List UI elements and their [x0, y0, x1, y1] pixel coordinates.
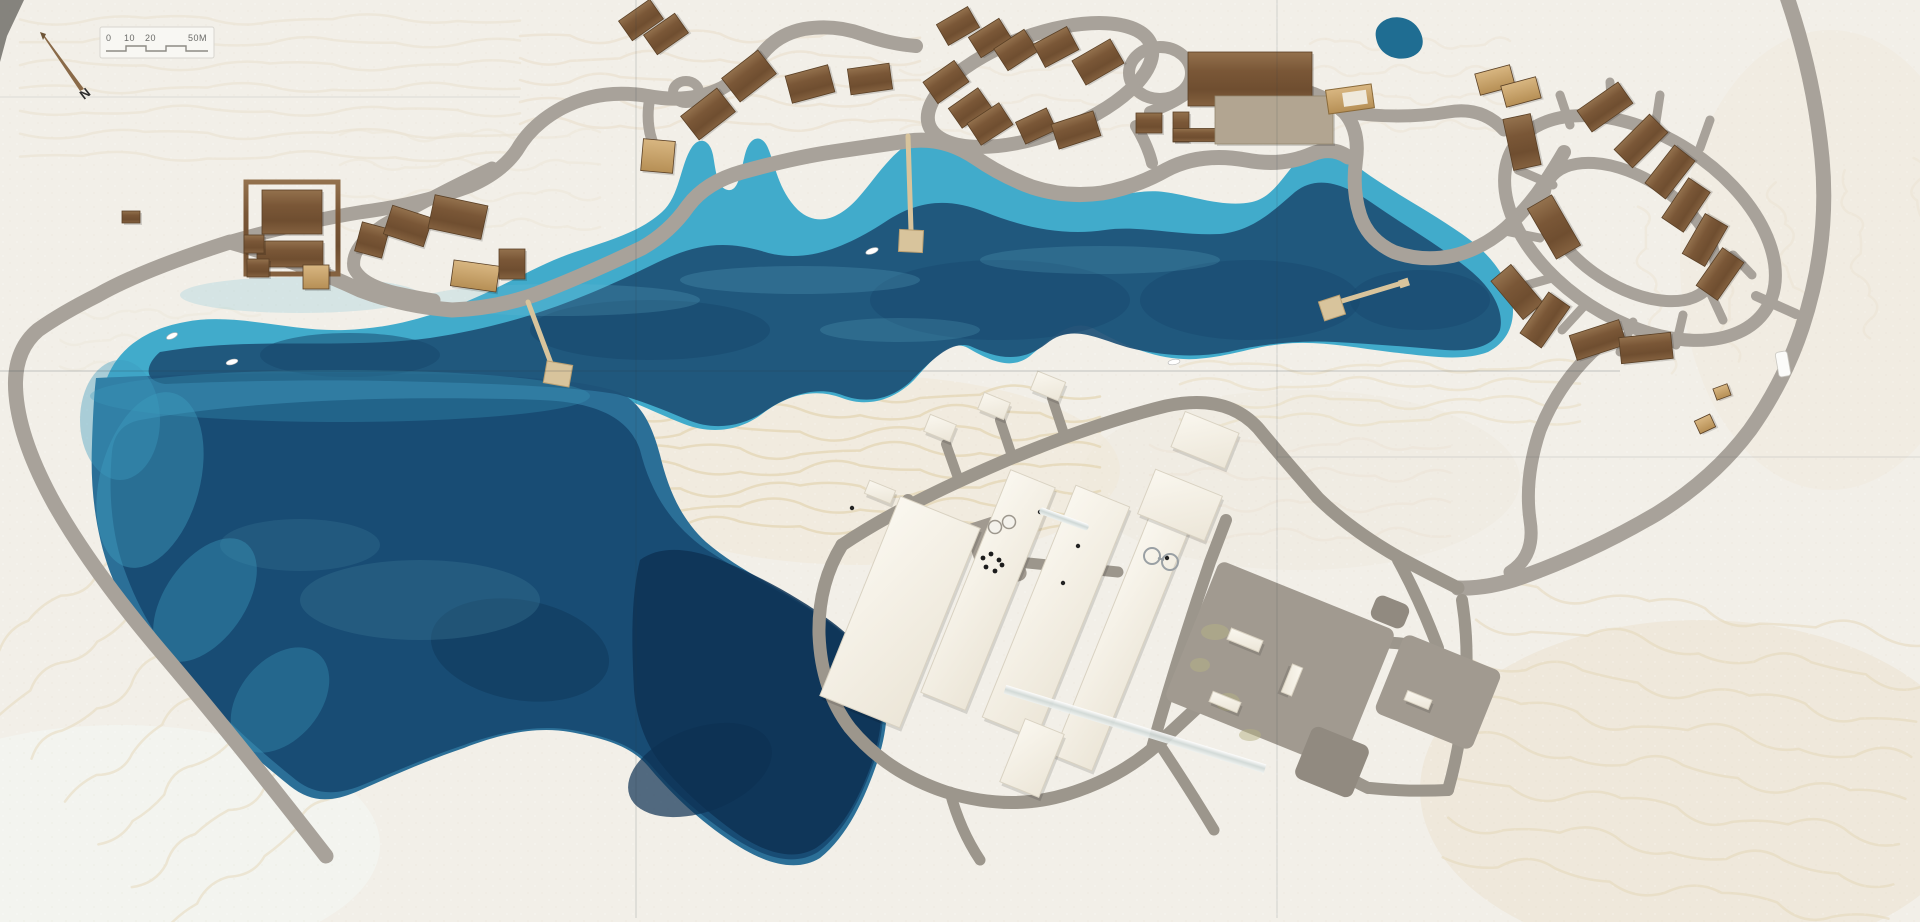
building-wood-block: [847, 63, 892, 95]
pin-dot: [1061, 581, 1065, 585]
building-wood-block: [247, 259, 269, 277]
tank-port-dot: [1000, 563, 1005, 568]
tank-port-dot: [993, 569, 998, 574]
pier-walkway: [908, 136, 911, 230]
moss-patch: [1201, 624, 1229, 640]
tank-port-dot: [997, 558, 1002, 563]
pier-platform: [543, 361, 572, 387]
scale-0: 0: [106, 33, 112, 43]
building-lightwood-block: [641, 139, 676, 174]
pin-dot: [850, 506, 854, 510]
model-scene: N 0 10 20 50M: [0, 0, 1920, 922]
scale-10: 10: [124, 33, 135, 43]
building-lightwood-block: [303, 265, 329, 289]
scale-20: 20: [145, 33, 156, 43]
building-wood-block: [1619, 332, 1673, 363]
moss-patch: [1239, 729, 1261, 741]
moss-patch: [1190, 658, 1210, 672]
building-wood-block: [244, 235, 264, 253]
building-wood-block: [499, 249, 525, 279]
scale-bar: 0 10 20 50M: [100, 27, 214, 58]
building-wood-block: [262, 190, 322, 234]
building-chipboard-slab: [1215, 96, 1333, 144]
tank-port-dot: [984, 565, 989, 570]
pier-platform: [898, 229, 923, 252]
water-detail: [80, 360, 160, 480]
site-model-photo: N 0 10 20 50M: [0, 0, 1920, 922]
tank-cylinder: [1003, 516, 1016, 529]
scale-50m: 50M: [188, 33, 207, 43]
water-detail: [680, 266, 920, 294]
tank-port-dot: [981, 556, 986, 561]
building-wood-block: [1173, 129, 1219, 142]
water-detail: [90, 370, 590, 422]
water-detail: [300, 560, 540, 640]
building-wood-block: [122, 211, 140, 223]
water-detail: [1350, 270, 1490, 330]
water-detail: [980, 246, 1220, 274]
road-path: [1370, 788, 1448, 791]
pin-dot: [1076, 544, 1080, 548]
water-detail: [820, 318, 980, 342]
tank-cylinder: [989, 521, 1002, 534]
tank-port-dot: [989, 552, 994, 557]
building-wood-block: [1136, 113, 1162, 133]
